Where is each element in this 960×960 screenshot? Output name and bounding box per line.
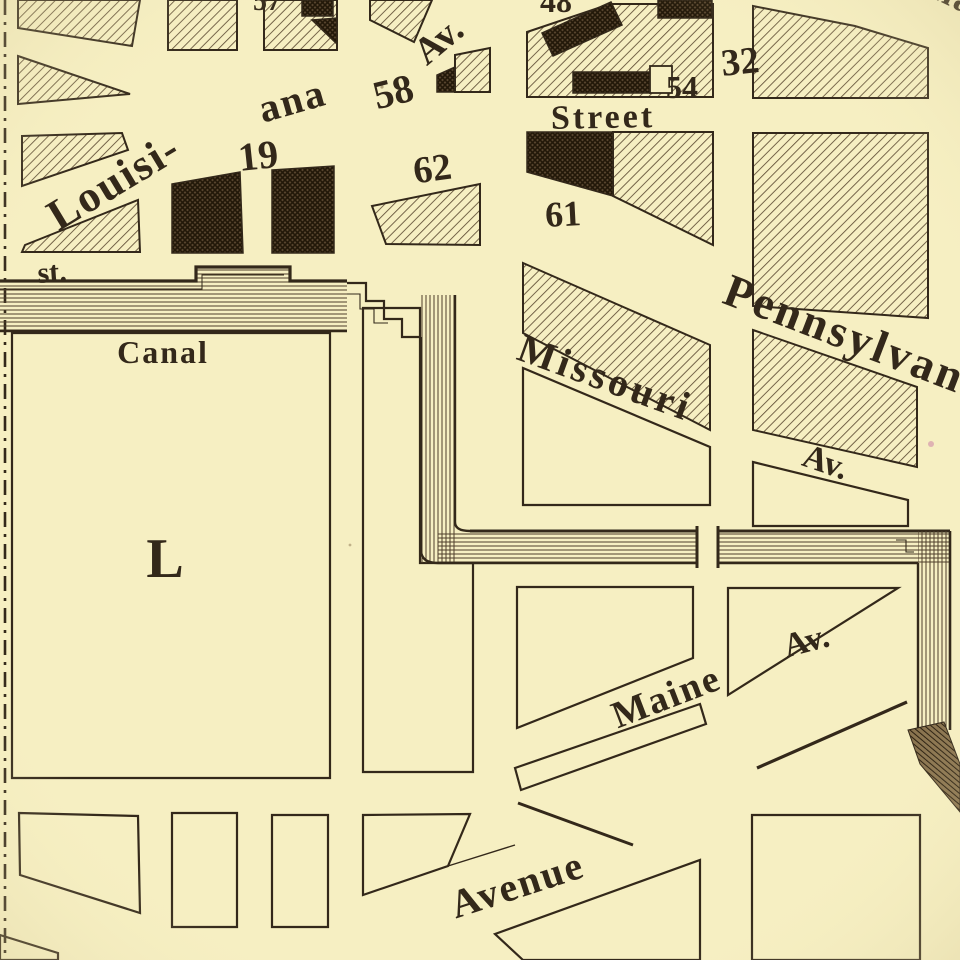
canal-segment-lower-west: [438, 531, 697, 563]
city-block-dark: [172, 172, 243, 253]
canal-label: Canal: [117, 334, 209, 370]
square-letter-L: L: [146, 528, 183, 590]
map-canvas: Louisi- ana Av. 58 19 57 48 54 32 62 61 …: [0, 0, 960, 960]
canal-segment-east-south: [918, 531, 950, 730]
canal-segment-south: [421, 295, 455, 563]
street-label-street: Street: [551, 98, 656, 137]
city-block-dark: [272, 166, 334, 253]
building: [658, 0, 712, 18]
square-number-19: 19: [236, 131, 280, 180]
building: [573, 72, 650, 93]
square-number-61: 61: [544, 193, 582, 235]
square-number-54: 54: [666, 69, 698, 105]
square-number-32: 32: [719, 39, 761, 85]
city-block: [168, 0, 237, 50]
antique-city-map: Louisi- ana Av. 58 19 57 48 54 32 62 61 …: [0, 0, 960, 960]
street-label-st: st.: [36, 255, 67, 290]
square-number-57: 57: [253, 0, 281, 17]
canal-segment-lower-east: [718, 531, 950, 563]
paper-blemish: [928, 441, 934, 447]
building: [302, 0, 333, 16]
paper-blemish: [349, 544, 352, 547]
square-number-48: 48: [540, 0, 572, 19]
city-block: [455, 48, 490, 92]
square-number-62: 62: [411, 146, 454, 193]
